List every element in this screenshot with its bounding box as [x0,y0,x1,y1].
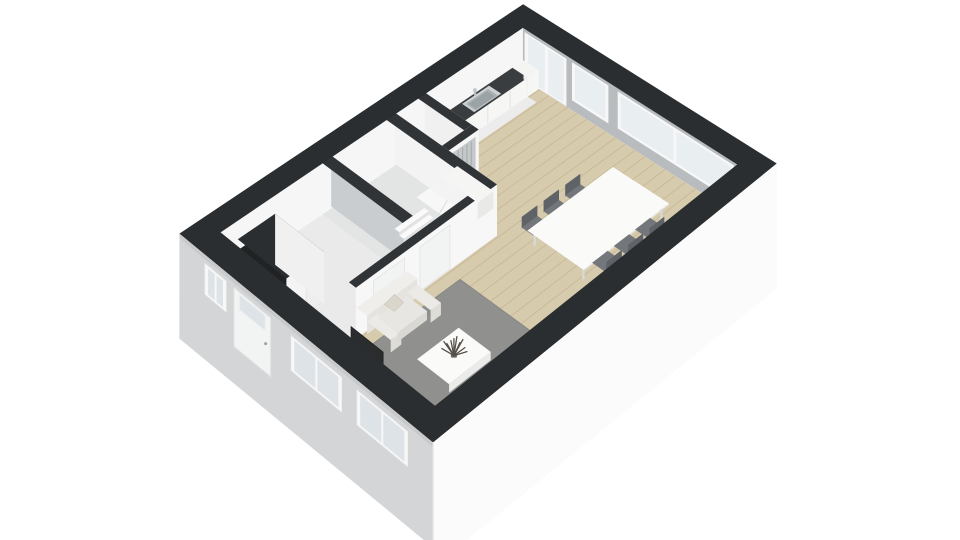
floorplan-viewport[interactable] [0,0,960,540]
floorplan-3d-canvas [0,0,960,540]
